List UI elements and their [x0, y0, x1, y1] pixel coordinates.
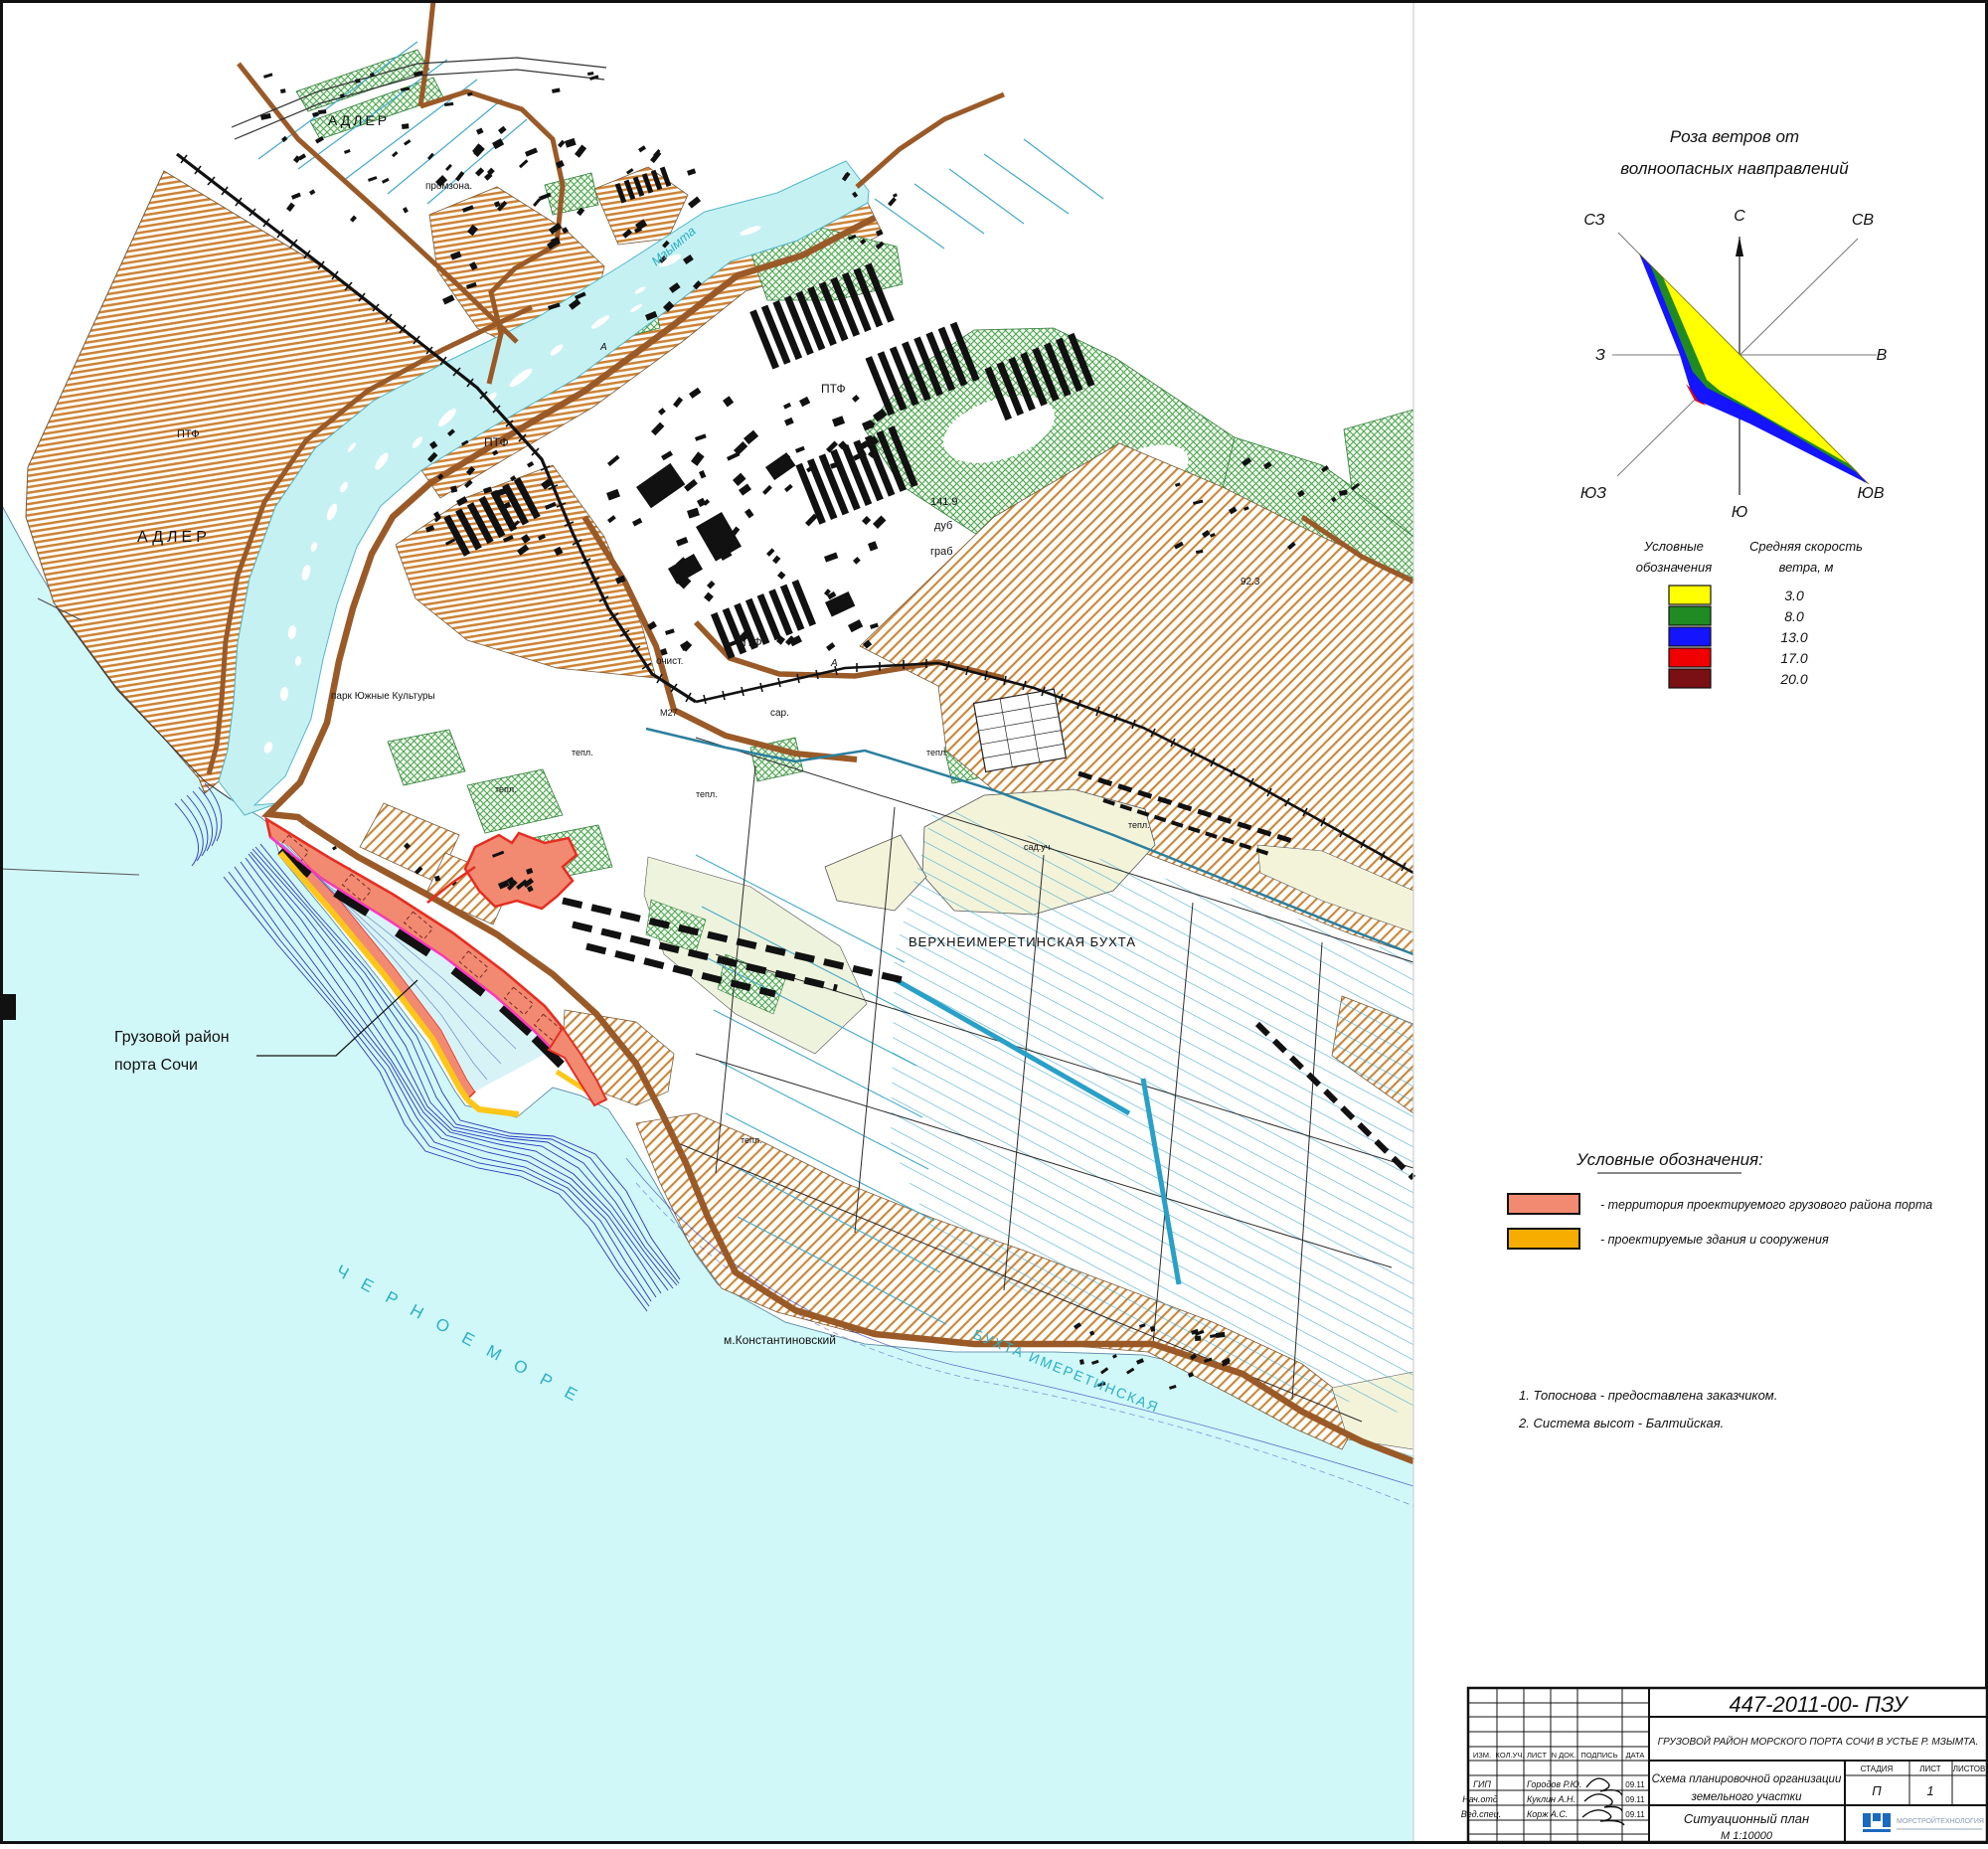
svg-text:Нач.отд: Нач.отд — [1462, 1794, 1497, 1804]
svg-text:СВ: СВ — [1852, 212, 1875, 229]
svg-text:тепл.: тепл. — [741, 1135, 762, 1145]
svg-text:1. Топоснова - предоставлена з: 1. Топоснова - предоставлена заказчиком. — [1519, 1388, 1777, 1403]
svg-text:М 1:10000: М 1:10000 — [1721, 1830, 1773, 1842]
svg-text:Схема планировочной организаци: Схема планировочной организации — [1652, 1773, 1842, 1785]
svg-text:ВЕРХНЕИМЕРЕТИНСКАЯ БУХТА: ВЕРХНЕИМЕРЕТИНСКАЯ БУХТА — [909, 934, 1136, 949]
svg-text:92.3: 92.3 — [1241, 577, 1260, 588]
svg-text:09.11: 09.11 — [1625, 1795, 1645, 1804]
svg-text:порта Сочи: порта Сочи — [114, 1057, 198, 1074]
svg-text:ПТФ: ПТФ — [821, 382, 846, 396]
svg-text:А: А — [599, 342, 607, 353]
svg-text:ЮЗ: ЮЗ — [1580, 485, 1606, 502]
svg-text:8.0: 8.0 — [1784, 608, 1804, 624]
svg-text:КОЛ.УЧ.: КОЛ.УЧ. — [1496, 1751, 1525, 1760]
svg-text:сар.: сар. — [770, 708, 789, 719]
svg-text:ИЗМ.: ИЗМ. — [1473, 1751, 1491, 1760]
svg-text:М27: М27 — [660, 708, 678, 718]
svg-text:Ситуационный план: Ситуационный план — [1684, 1811, 1809, 1826]
svg-text:С: С — [1734, 208, 1745, 225]
svg-text:П: П — [1872, 1783, 1882, 1798]
svg-text:13.0: 13.0 — [1780, 629, 1807, 645]
svg-text:ГРУЗОВОЙ РАЙОН МОРСКОГО ПОРТА: ГРУЗОВОЙ РАЙОН МОРСКОГО ПОРТА СОЧИ В УСТ… — [1658, 1735, 1979, 1748]
svg-text:ЛИСТ: ЛИСТ — [1527, 1751, 1547, 1760]
svg-text:- территория проектируемого гр: - территория проектируемого грузового ра… — [1600, 1198, 1932, 1212]
svg-text:тепл.: тепл. — [572, 748, 593, 757]
svg-text:тепл.: тепл. — [696, 789, 718, 799]
svg-text:ГИП: ГИП — [1473, 1779, 1491, 1789]
svg-text:граб: граб — [930, 546, 953, 558]
svg-text:Средняя скорость: Средняя скорость — [1749, 539, 1863, 554]
svg-text:обозначения: обозначения — [1636, 560, 1713, 575]
svg-text:Городов Р.Ю.: Городов Р.Ю. — [1527, 1779, 1581, 1789]
svg-text:СТАДИЯ: СТАДИЯ — [1861, 1765, 1894, 1773]
svg-text:тепл.: тепл. — [495, 784, 517, 794]
svg-text:Грузовой район: Грузовой район — [114, 1029, 230, 1046]
svg-text:09.11: 09.11 — [1625, 1780, 1645, 1789]
svg-text:Ю: Ю — [1732, 504, 1747, 521]
svg-text:Условные: Условные — [1643, 539, 1704, 554]
svg-text:- проектируемые здания и соору: - проектируемые здания и сооружения — [1600, 1233, 1829, 1247]
svg-text:ЛИСТ: ЛИСТ — [1919, 1765, 1941, 1773]
svg-text:2. Система высот - Балтийская.: 2. Система высот - Балтийская. — [1518, 1416, 1724, 1430]
svg-text:09.11: 09.11 — [1625, 1810, 1645, 1819]
svg-text:В: В — [1877, 347, 1888, 364]
svg-text:очист.: очист. — [656, 656, 683, 667]
svg-text:дуб: дуб — [934, 520, 952, 532]
svg-text:141.9: 141.9 — [930, 496, 958, 508]
svg-text:волноопасных навправлений: волноопасных навправлений — [1620, 159, 1849, 178]
svg-text:1: 1 — [1926, 1783, 1933, 1798]
svg-text:447-2011-00- ПЗУ: 447-2011-00- ПЗУ — [1729, 1692, 1908, 1717]
svg-text:АДЛЕР: АДЛЕР — [328, 112, 390, 128]
svg-text:Куклин А.Н.: Куклин А.Н. — [1527, 1794, 1575, 1804]
svg-text:м.Константиновский: м.Константиновский — [724, 1333, 836, 1347]
svg-text:17.0: 17.0 — [1780, 650, 1807, 666]
svg-text:СЗ: СЗ — [1583, 212, 1604, 229]
svg-text:земельного участки: земельного участки — [1690, 1791, 1802, 1803]
svg-text:ПТФ: ПТФ — [177, 428, 200, 440]
svg-text:Условные обозначения:: Условные обозначения: — [1575, 1150, 1763, 1169]
svg-text:тепл.: тепл. — [1128, 820, 1150, 830]
svg-text:Вед.спец.: Вед.спец. — [1461, 1809, 1502, 1819]
svg-text:З: З — [1595, 347, 1605, 364]
svg-text:ветра, м: ветра, м — [1779, 560, 1834, 575]
svg-text:Роза ветров от: Роза ветров от — [1670, 127, 1799, 146]
svg-text:ЮВ: ЮВ — [1857, 485, 1884, 502]
svg-text:3.0: 3.0 — [1784, 588, 1804, 603]
svg-text:ЛИСТОВ: ЛИСТОВ — [1953, 1765, 1986, 1773]
svg-text:тепл.: тепл. — [926, 748, 948, 757]
svg-text:сад.уч: сад.уч — [1024, 842, 1051, 852]
svg-text:N ДОК.: N ДОК. — [1552, 1751, 1576, 1760]
svg-text:ПТФ: ПТФ — [738, 635, 762, 649]
svg-text:АДЛЕР: АДЛЕР — [137, 529, 211, 546]
svg-text:ДАТА: ДАТА — [1626, 1751, 1645, 1760]
svg-text:А: А — [830, 658, 838, 669]
svg-text:Корж А.С.: Корж А.С. — [1527, 1809, 1568, 1819]
svg-text:парк Южные Культуры: парк Южные Культуры — [331, 691, 435, 702]
svg-text:ПТФ: ПТФ — [484, 435, 509, 449]
svg-text:промзона.: промзона. — [425, 181, 472, 192]
svg-text:МОРСТРОЙТЕХНОЛОГИЯ: МОРСТРОЙТЕХНОЛОГИЯ — [1897, 1816, 1984, 1825]
svg-text:20.0: 20.0 — [1779, 671, 1807, 687]
svg-text:ПОДПИСЬ: ПОДПИСЬ — [1580, 1751, 1617, 1760]
